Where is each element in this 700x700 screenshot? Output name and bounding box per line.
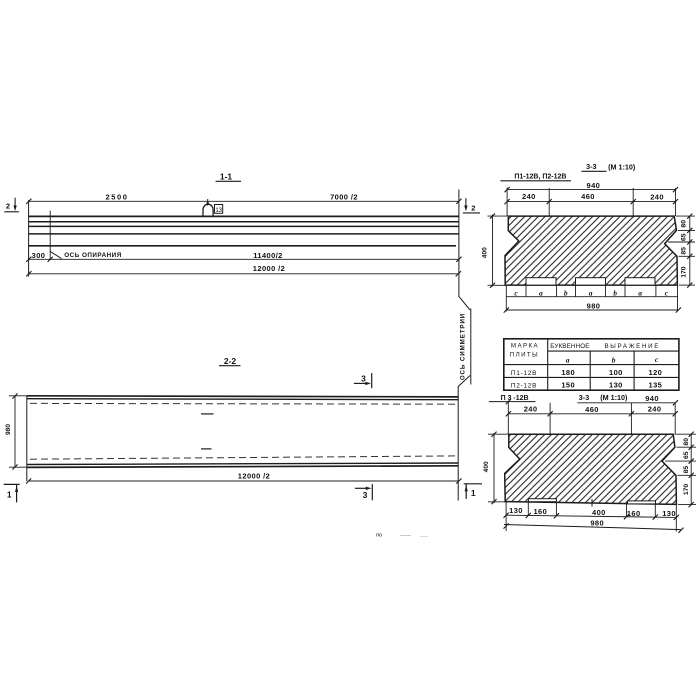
svg-text:980: 980	[587, 301, 601, 310]
svg-text:b: b	[612, 356, 616, 365]
svg-text:(М 1:10): (М 1:10)	[608, 162, 636, 171]
svg-text:940: 940	[587, 181, 601, 190]
svg-text:a: a	[539, 288, 543, 297]
svg-text:240: 240	[648, 405, 662, 414]
svg-text:11400/2: 11400/2	[253, 251, 283, 260]
svg-text:130: 130	[609, 381, 623, 390]
svg-text:П1-12В: П1-12В	[511, 370, 537, 377]
svg-text:3-3: 3-3	[579, 393, 589, 402]
svg-text:160: 160	[533, 507, 547, 516]
svg-text:940: 940	[645, 394, 659, 403]
svg-text:160: 160	[627, 509, 641, 518]
svg-text:65: 65	[680, 233, 687, 241]
svg-text:ОСЬ ОПИРАНИЯ: ОСЬ ОПИРАНИЯ	[64, 252, 121, 259]
svg-text:980: 980	[590, 518, 604, 527]
svg-text:a: a	[638, 288, 642, 297]
svg-text:7000 /2: 7000 /2	[330, 192, 358, 201]
svg-text:80: 80	[680, 220, 687, 228]
svg-text:(М 1:10): (М 1:10)	[600, 393, 628, 402]
svg-text:130: 130	[662, 509, 676, 518]
svg-text:по: по	[376, 533, 382, 539]
svg-text:300: 300	[32, 251, 46, 260]
svg-text:a: a	[589, 288, 593, 297]
svg-text:ОСЬ СИММЕТРИИ: ОСЬ СИММЕТРИИ	[459, 313, 466, 380]
svg-text:ВЫРАЖЕНИЕ: ВЫРАЖЕНИЕ	[604, 343, 660, 350]
svg-text:980: 980	[5, 424, 12, 435]
svg-text:240: 240	[524, 405, 538, 414]
svg-text:3: 3	[361, 373, 366, 383]
svg-text:85: 85	[683, 466, 690, 474]
svg-text:180: 180	[561, 368, 575, 377]
svg-text:170: 170	[683, 484, 690, 496]
svg-text:П1-12В, П2-12В: П1-12В, П2-12В	[514, 173, 566, 180]
svg-text:1: 1	[471, 488, 476, 498]
svg-text:2-2: 2-2	[224, 356, 237, 366]
svg-text:П2-12В: П2-12В	[511, 383, 537, 390]
svg-text:130: 130	[509, 506, 523, 515]
svg-text:БУКВЕННОЕ: БУКВЕННОЕ	[550, 343, 589, 350]
svg-text:400: 400	[592, 508, 606, 517]
svg-text:П 3 -12В: П 3 -12В	[501, 395, 529, 402]
svg-text:2500: 2500	[105, 192, 128, 201]
svg-text:1-1: 1-1	[220, 172, 233, 182]
svg-text:1: 1	[7, 490, 12, 500]
svg-text:a: a	[566, 356, 570, 365]
svg-text:13: 13	[215, 208, 222, 214]
svg-text:100: 100	[609, 368, 623, 377]
svg-text:135: 135	[649, 381, 663, 390]
svg-text:65: 65	[683, 451, 690, 459]
svg-text:2: 2	[471, 203, 475, 212]
svg-text:170: 170	[680, 266, 687, 278]
svg-text:400: 400	[483, 461, 490, 472]
svg-text:460: 460	[585, 405, 599, 414]
svg-text:b: b	[613, 288, 617, 297]
svg-text:МАРКА: МАРКА	[511, 342, 539, 349]
svg-text:3-3: 3-3	[586, 162, 596, 171]
svg-text:12000 /2: 12000 /2	[238, 471, 270, 480]
svg-text:80: 80	[683, 438, 690, 446]
svg-text:240: 240	[522, 192, 536, 201]
svg-text:ПЛИТЫ: ПЛИТЫ	[510, 352, 539, 359]
svg-text:460: 460	[581, 192, 595, 201]
svg-text:b: b	[564, 288, 568, 297]
svg-text:240: 240	[650, 193, 664, 202]
svg-text:120: 120	[649, 368, 663, 377]
svg-text:12000 /2: 12000 /2	[253, 264, 285, 273]
svg-text:150: 150	[561, 381, 575, 390]
svg-text:3: 3	[363, 490, 368, 500]
svg-text:85: 85	[680, 247, 687, 255]
svg-text:2: 2	[6, 201, 10, 210]
svg-text:400: 400	[481, 247, 488, 258]
